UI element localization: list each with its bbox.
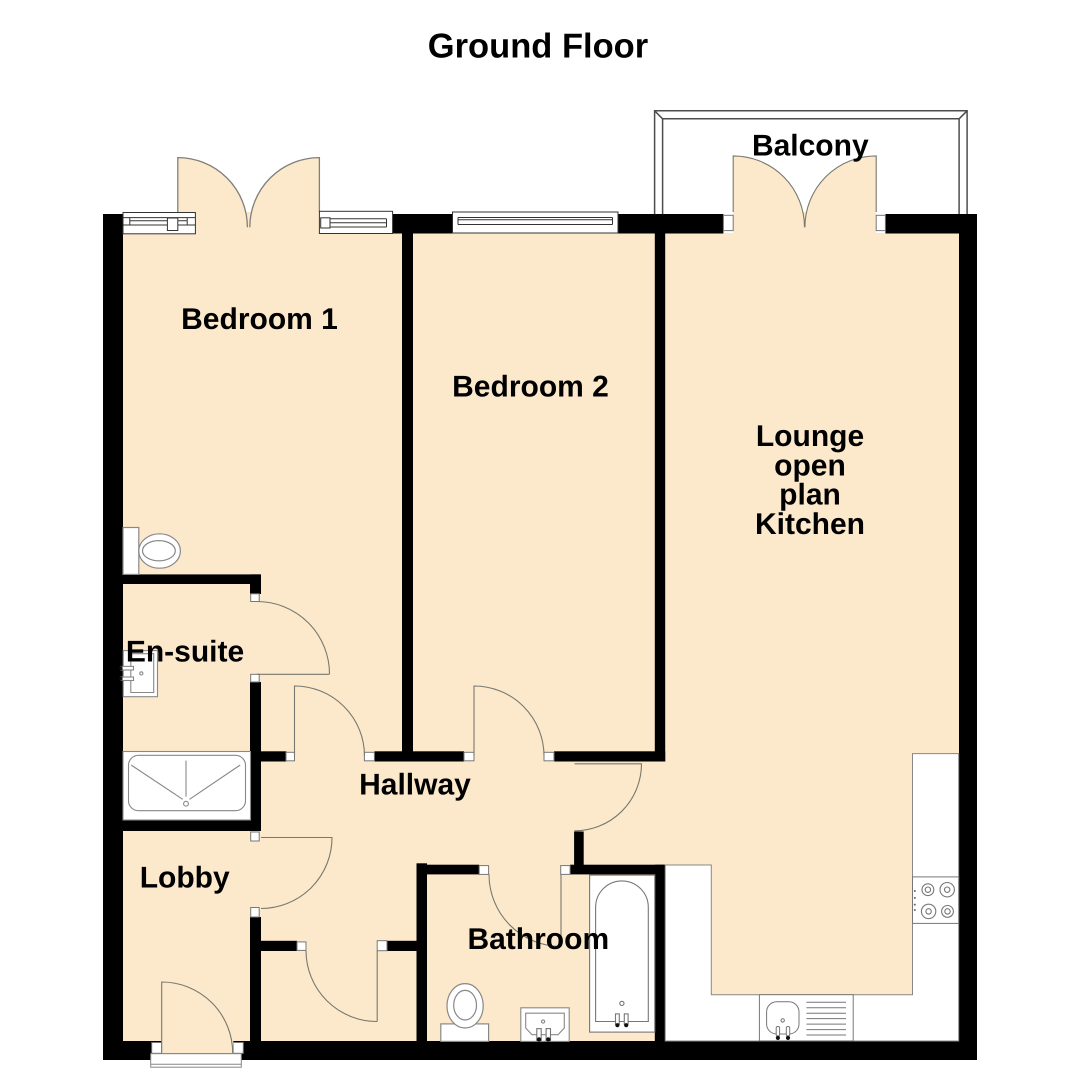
svg-text:Bedroom 2: Bedroom 2 — [452, 371, 609, 404]
svg-text:plan: plan — [779, 479, 841, 512]
svg-text:Bathroom: Bathroom — [467, 923, 609, 956]
svg-text:Ground Floor: Ground Floor — [428, 28, 648, 66]
svg-text:Hallway: Hallway — [359, 769, 471, 802]
svg-text:Balcony: Balcony — [752, 130, 869, 163]
svg-text:Bedroom 1: Bedroom 1 — [181, 303, 338, 336]
svg-text:Lobby: Lobby — [140, 862, 230, 895]
svg-text:En-suite: En-suite — [126, 636, 244, 669]
svg-text:Lounge: Lounge — [756, 420, 864, 453]
svg-text:open: open — [774, 449, 846, 482]
svg-text:Kitchen: Kitchen — [755, 508, 865, 541]
